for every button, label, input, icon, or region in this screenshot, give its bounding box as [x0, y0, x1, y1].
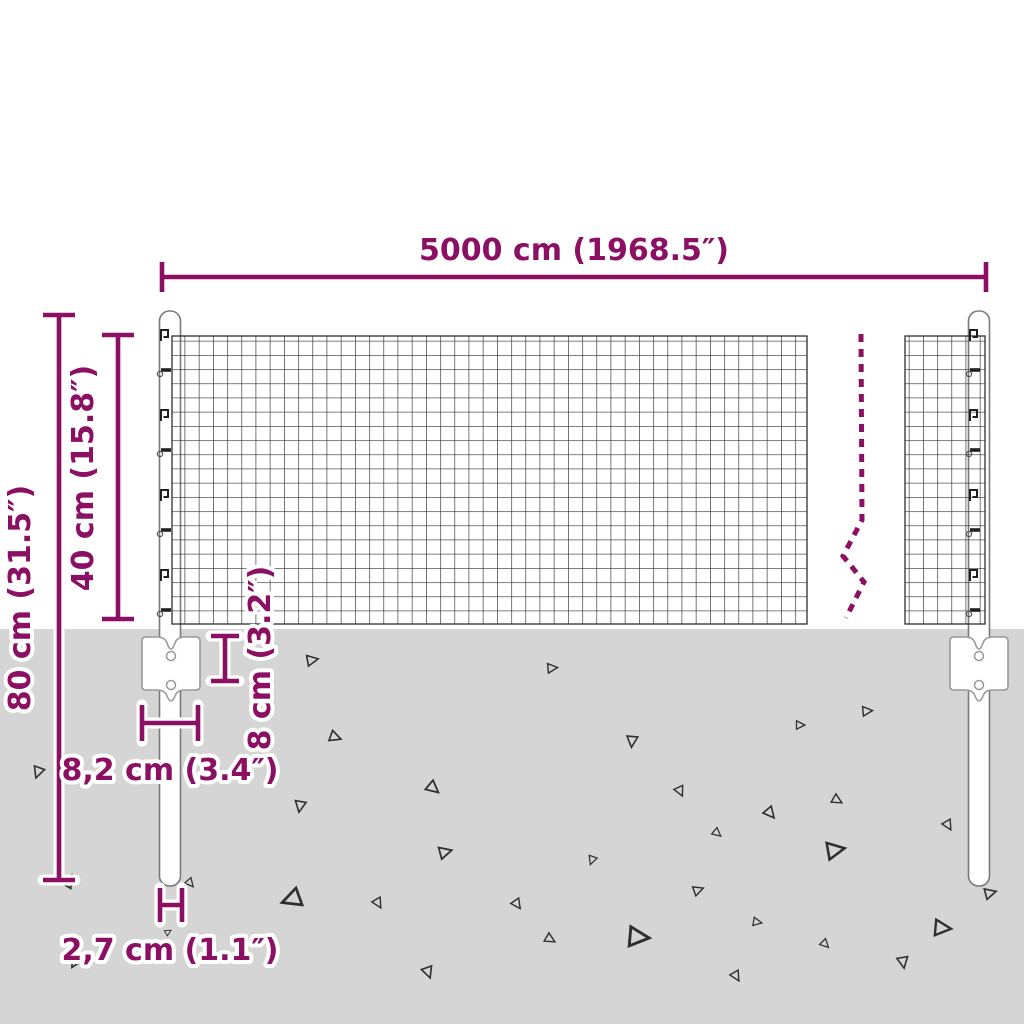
dimension-total-width: 5000 cm (1968.5″) — [162, 233, 986, 292]
mesh-height-label: 40 cm (15.8″) — [66, 365, 101, 592]
plate-height-label: 8 cm (3.2″) — [243, 566, 278, 751]
dimension-mesh-height: 40 cm (15.8″) — [66, 335, 134, 619]
break-line-icon — [843, 334, 864, 618]
post-height-label: 80 cm (31.5″) — [3, 485, 38, 712]
post-diameter-label: 2,7 cm (1.1″) — [61, 933, 278, 968]
wire-mesh-icon-right — [905, 336, 985, 624]
diagram-svg: 5000 cm (1968.5″) 80 cm (31.5″) 40 cm (1… — [0, 0, 1024, 1024]
fence-dimension-diagram: 5000 cm (1968.5″) 80 cm (31.5″) 40 cm (1… — [0, 0, 1024, 1024]
total-width-label: 5000 cm (1968.5″) — [419, 233, 729, 268]
plate-width-label: 8,2 cm (3.4″) — [61, 753, 278, 788]
